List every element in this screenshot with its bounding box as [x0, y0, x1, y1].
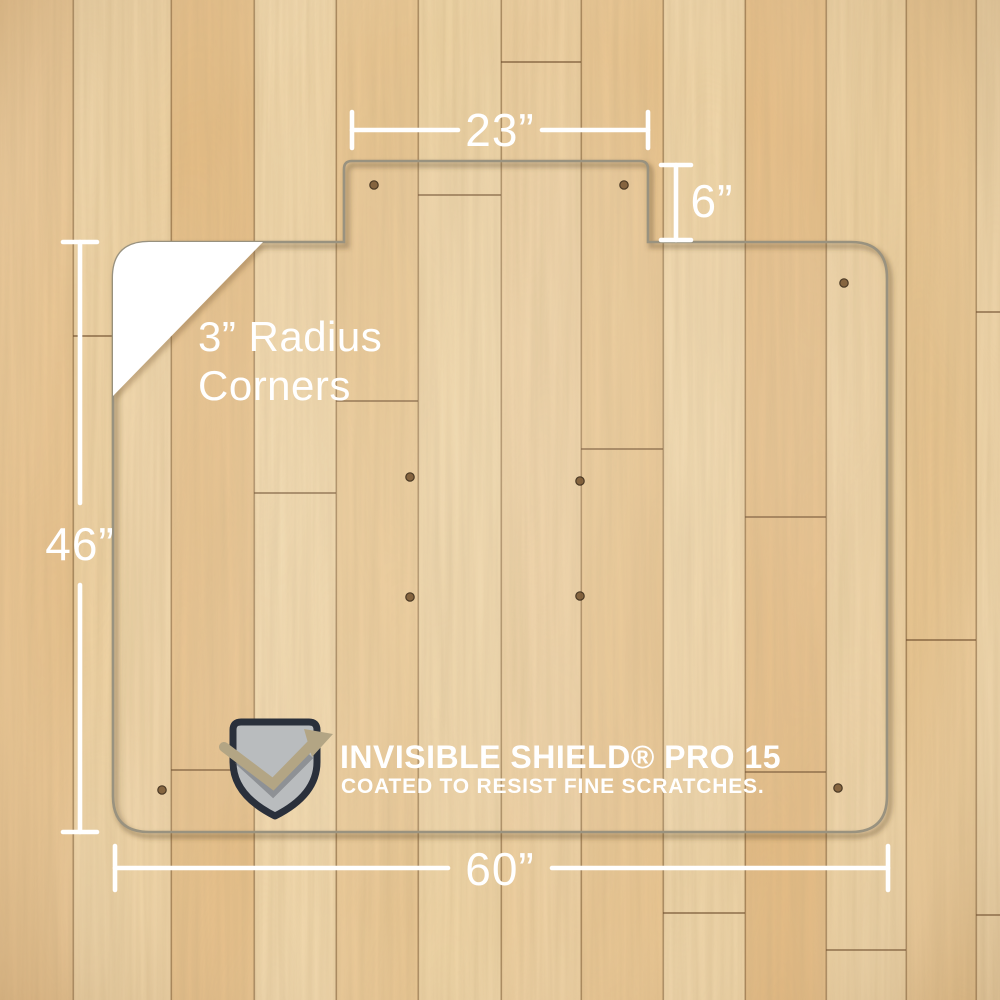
corner-radius-callout: 3” Radius Corners [198, 312, 382, 410]
dimension-label-tab-depth: 6” [691, 174, 734, 228]
dimension-label-mat-width: 60” [465, 842, 534, 896]
dimension-label-mat-height: 46” [45, 517, 114, 571]
chair-mat-product-image: 23” 6” 46” 60” 3” Radius Corners INVISIB… [0, 0, 1000, 1000]
corner-callout-line2: Corners [198, 361, 382, 410]
dimension-label-tab-width: 23” [465, 103, 534, 157]
corner-callout-line1: 3” Radius [198, 312, 382, 361]
brand-title: INVISIBLE SHIELD® PRO 15 [340, 739, 781, 776]
brand-tagline: COATED TO RESIST FINE SCRATCHES. [341, 775, 764, 799]
